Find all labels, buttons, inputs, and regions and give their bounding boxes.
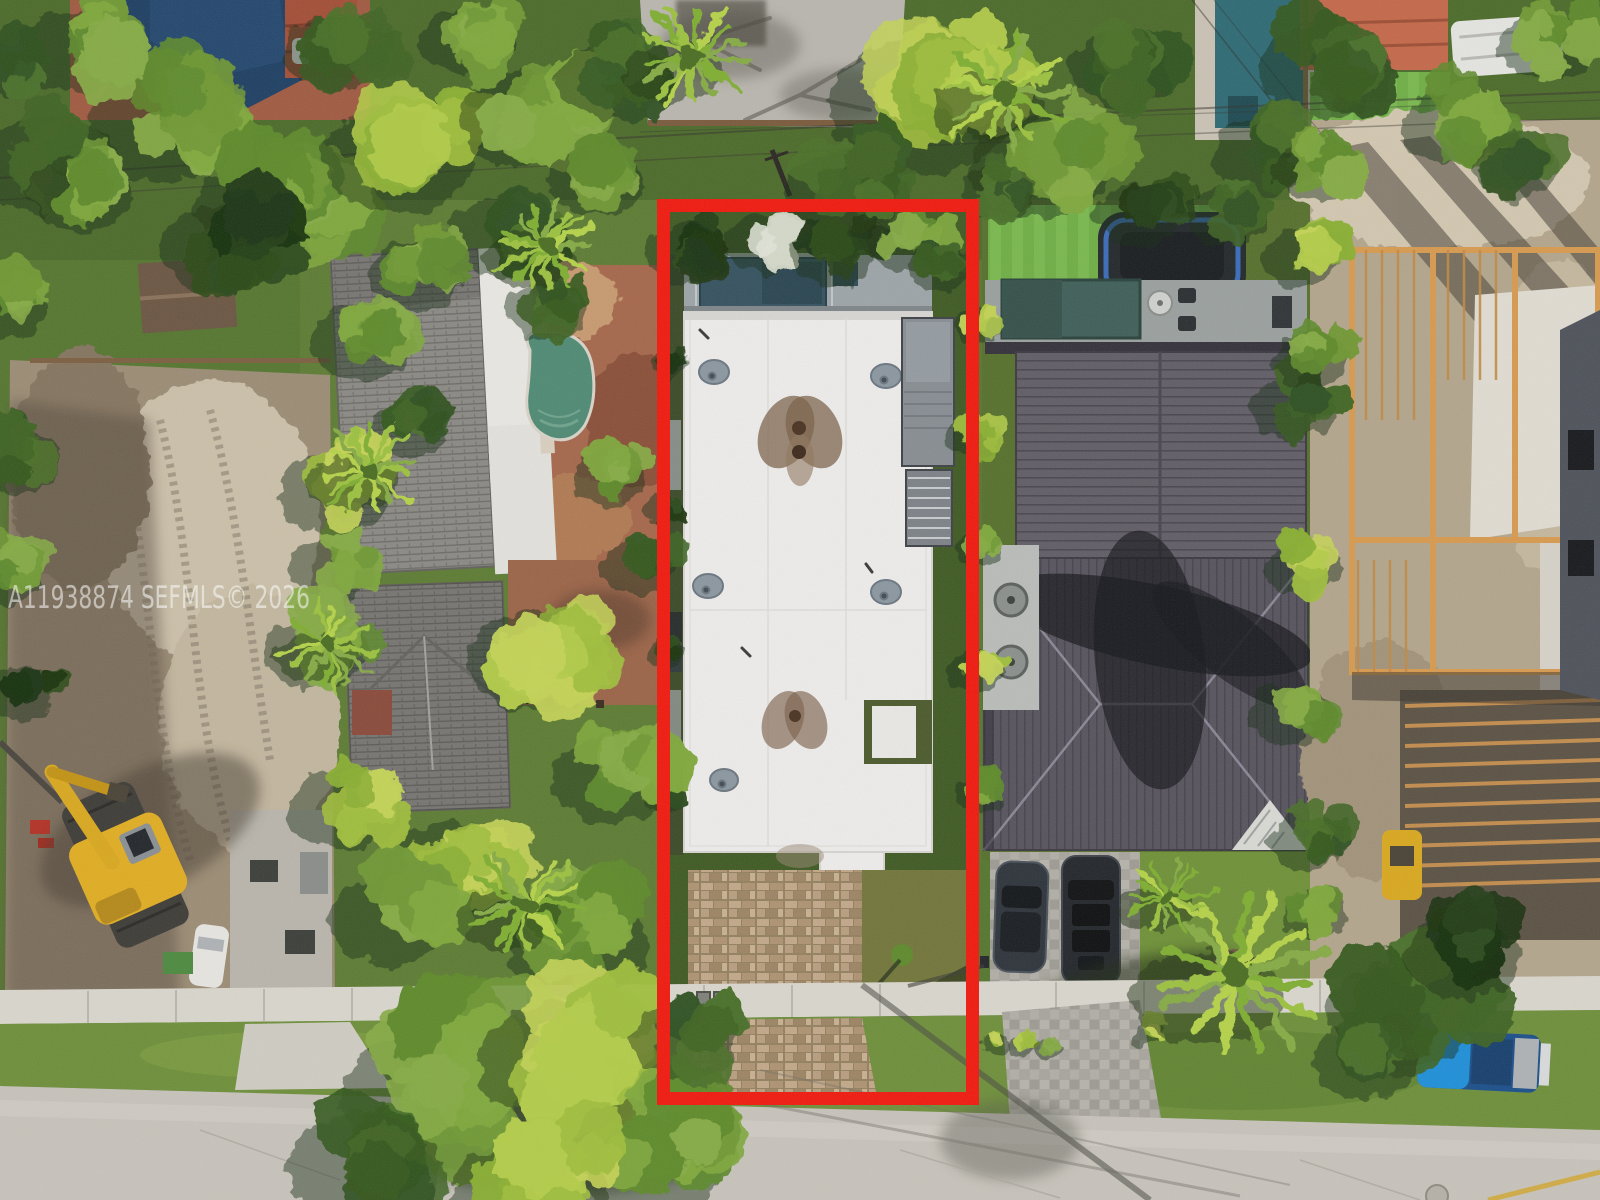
photo-grain-overlay [0,0,1600,1200]
aerial-scene: A11938874 SEFMLS© 2026 [0,0,1600,1200]
aerial-photo: A11938874 SEFMLS© 2026 [0,0,1600,1200]
